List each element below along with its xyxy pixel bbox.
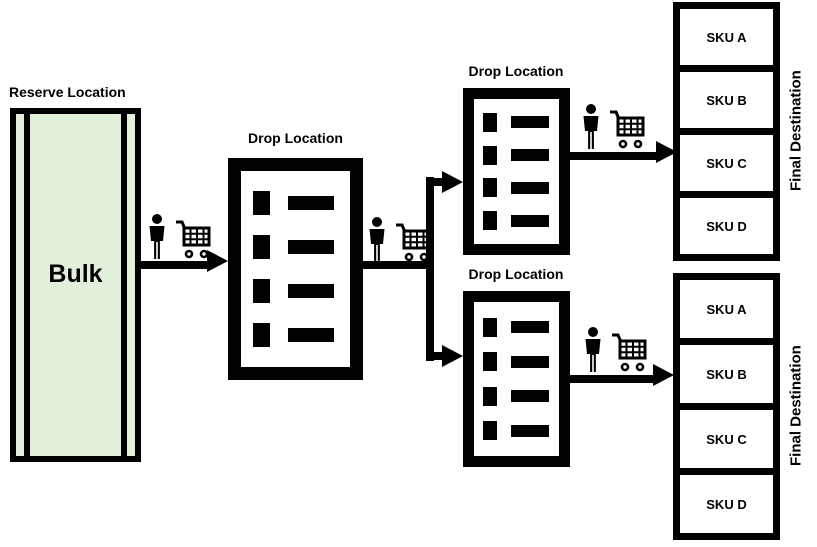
- flow-arrow-1-line: [141, 261, 213, 269]
- list-row: [474, 421, 559, 440]
- slot-square-icon: [253, 191, 270, 215]
- drop-location-upper-box: [463, 88, 570, 255]
- drop-location-lower-box: [463, 291, 570, 467]
- person-icon: [366, 217, 388, 263]
- list-row: [241, 235, 350, 259]
- slot-bar-icon: [511, 356, 549, 368]
- slot-square-icon: [483, 318, 497, 337]
- shopping-cart-icon: [611, 332, 647, 373]
- list-row: [241, 279, 350, 303]
- final-destination-lower-label: Final Destination: [784, 331, 808, 481]
- worker-cart-group-1: [146, 214, 211, 260]
- bulk-rack-box: Bulk: [10, 108, 141, 462]
- worker-cart-group-4: [582, 327, 647, 373]
- list-row: [474, 178, 559, 197]
- flow-arrow-1-head: [207, 250, 228, 272]
- sku-label: SKU D: [706, 219, 746, 234]
- list-row: [241, 191, 350, 215]
- slot-bar-icon: [511, 182, 549, 194]
- reserve-location-label: Reserve Location: [9, 84, 126, 100]
- slot-square-icon: [483, 146, 497, 165]
- slot-bar-icon: [288, 284, 334, 298]
- bulk-label: Bulk: [48, 260, 102, 289]
- slot-square-icon: [483, 421, 497, 440]
- final-destination-lower-stack: SKU A SKU B SKU C SKU D: [673, 273, 780, 540]
- flow-arrow-4-head: [653, 364, 674, 386]
- sku-box: SKU D: [673, 468, 780, 540]
- sku-box: SKU C: [673, 128, 780, 198]
- sku-box: SKU A: [673, 273, 780, 345]
- drop-location-middle-label: Drop Location: [228, 130, 363, 146]
- person-icon: [580, 104, 602, 150]
- sku-box: SKU A: [673, 2, 780, 72]
- slot-square-icon: [483, 113, 497, 132]
- shopping-cart-icon: [609, 109, 645, 150]
- sku-label: SKU A: [707, 302, 747, 317]
- final-destination-upper-stack: SKU A SKU B SKU C SKU D: [673, 2, 780, 261]
- list-row: [474, 318, 559, 337]
- sku-label: SKU C: [706, 156, 746, 171]
- slot-bar-icon: [288, 196, 334, 210]
- slot-square-icon: [483, 352, 497, 371]
- drop-location-upper-label: Drop Location: [446, 63, 586, 79]
- person-icon: [146, 214, 168, 260]
- person-icon: [582, 327, 604, 373]
- drop-location-lower-label: Drop Location: [446, 266, 586, 282]
- branch-vertical-line: [426, 177, 434, 361]
- sku-box: SKU C: [673, 403, 780, 475]
- shopping-cart-icon: [175, 219, 211, 260]
- slot-bar-icon: [511, 116, 549, 128]
- flow-arrow-3-line: [570, 152, 658, 160]
- slot-bar-icon: [511, 390, 549, 402]
- worker-cart-group-3: [580, 104, 645, 150]
- sku-label: SKU A: [707, 30, 747, 45]
- list-row: [474, 352, 559, 371]
- slot-square-icon: [483, 387, 497, 406]
- warehouse-flow-diagram: Reserve Location Bulk Drop Location Drop…: [0, 0, 817, 547]
- slot-square-icon: [253, 323, 270, 347]
- sku-box: SKU B: [673, 65, 780, 135]
- sku-box: SKU B: [673, 338, 780, 410]
- slot-bar-icon: [511, 149, 549, 161]
- list-row: [241, 323, 350, 347]
- slot-bar-icon: [288, 328, 334, 342]
- sku-label: SKU D: [706, 497, 746, 512]
- slot-bar-icon: [288, 240, 334, 254]
- drop-location-middle-box: [228, 158, 363, 380]
- list-row: [474, 113, 559, 132]
- slot-bar-icon: [511, 321, 549, 333]
- slot-square-icon: [483, 178, 497, 197]
- slot-square-icon: [483, 211, 497, 230]
- branch-top-arrow-head: [442, 171, 463, 193]
- list-row: [474, 211, 559, 230]
- list-row: [474, 146, 559, 165]
- list-row: [474, 387, 559, 406]
- worker-cart-group-2: [366, 217, 431, 263]
- slot-bar-icon: [511, 425, 549, 437]
- branch-feeder-line: [363, 261, 434, 269]
- flow-arrow-4-line: [570, 375, 655, 383]
- slot-square-icon: [253, 235, 270, 259]
- slot-bar-icon: [511, 215, 549, 227]
- final-destination-upper-label: Final Destination: [784, 56, 808, 206]
- slot-square-icon: [253, 279, 270, 303]
- sku-box: SKU D: [673, 191, 780, 261]
- branch-bottom-arrow-head: [442, 345, 463, 367]
- sku-label: SKU C: [706, 432, 746, 447]
- sku-label: SKU B: [706, 367, 746, 382]
- sku-label: SKU B: [706, 93, 746, 108]
